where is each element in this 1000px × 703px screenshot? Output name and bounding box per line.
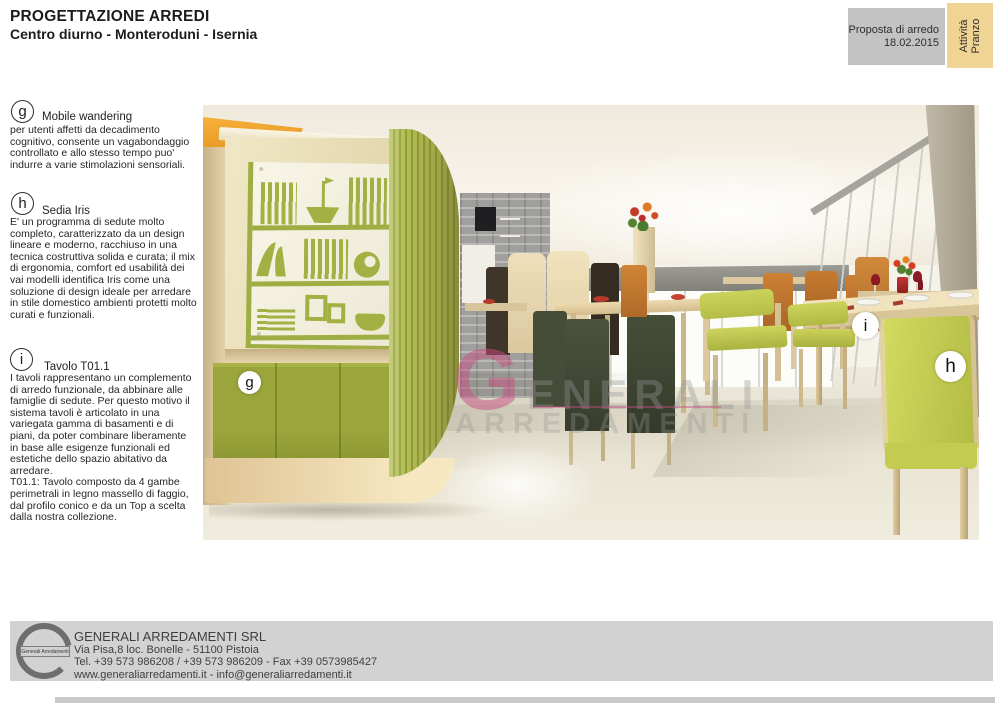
annotation-letter-g: g xyxy=(11,100,34,123)
lime-chair-back xyxy=(699,288,775,319)
red-dish xyxy=(483,299,495,304)
chair-leg xyxy=(799,349,803,407)
cabinet-niche-shelf xyxy=(225,349,401,363)
activity-tab-line2: Pranzo xyxy=(970,19,982,54)
frame-silhouette xyxy=(327,303,345,323)
plate xyxy=(855,298,881,306)
footer-web-email: www.generaliarredamenti.it - info@genera… xyxy=(74,669,377,681)
footer-address: Via Pisa,8 loc. Bonelle - 51100 Pistoia xyxy=(74,644,377,656)
annotation-body-i: I tavoli rappresentano un complemento di… xyxy=(10,373,197,524)
plant-silhouette xyxy=(256,242,276,276)
panel-screw xyxy=(259,167,263,171)
lime-chair-back xyxy=(787,301,848,327)
activity-tab-text: Attività Pranzo xyxy=(947,4,993,68)
annotation-letter-i: i xyxy=(10,348,33,371)
annotation-body-i-part1: I tavoli rappresentano un complemento di… xyxy=(10,373,197,477)
proposal-label: Proposta di arredo xyxy=(849,24,940,37)
wine-glass-stem xyxy=(916,282,918,291)
green-shelf xyxy=(252,225,395,231)
sailboat-silhouette xyxy=(322,181,325,209)
lime-chair-back xyxy=(879,315,979,454)
red-vase xyxy=(897,277,908,293)
footer-company-name: GENERALI ARREDAMENTI SRL xyxy=(74,629,377,644)
sailboat-silhouette xyxy=(302,207,342,224)
render-marker-h: h xyxy=(935,351,966,382)
plate xyxy=(903,294,930,302)
door-seam xyxy=(339,363,341,461)
sailboat-silhouette xyxy=(325,177,334,184)
wine-glass-stem xyxy=(874,285,876,294)
proposal-date: 18.02.2015 xyxy=(884,37,939,50)
tv-screen xyxy=(475,207,496,231)
dining-room-render: GENERALI ARREDAMENTI g i h xyxy=(203,105,979,540)
render-marker-g: g xyxy=(238,371,261,394)
chair-leg xyxy=(843,347,847,409)
watermark-arredamenti: ARREDAMENTI xyxy=(455,408,757,441)
book-silhouettes xyxy=(260,182,297,224)
chair-leg xyxy=(960,467,968,539)
page-title: PROGETTAZIONE ARREDI xyxy=(10,8,209,26)
chair-leg xyxy=(763,353,768,431)
green-shelf xyxy=(252,281,395,287)
red-dish xyxy=(593,296,609,302)
activity-tab: Attività Pranzo xyxy=(947,3,993,68)
annotation-body-h: E' un programma di sedute molto completo… xyxy=(10,217,197,321)
activity-tab-line1: Attività xyxy=(958,20,970,53)
proposal-box: Proposta di arredo 18.02.2015 xyxy=(848,8,945,65)
frame-silhouette xyxy=(305,295,327,321)
plant-silhouette xyxy=(272,246,286,276)
cabinet-frosted-panel xyxy=(246,162,397,350)
apple-silhouette xyxy=(354,251,380,277)
wall-shelf xyxy=(500,235,520,237)
book-silhouettes xyxy=(304,239,349,280)
bottom-edge-strip xyxy=(55,697,995,703)
annotation-body-g: per utenti affetti da decadimento cognit… xyxy=(10,125,197,171)
lime-chair-seat xyxy=(793,329,855,347)
proposal-page: PROGETTAZIONE ARREDI Centro diurno - Mon… xyxy=(0,0,1000,703)
floor-light-glow xyxy=(438,443,598,527)
annotation-title-g: Mobile wandering xyxy=(42,111,132,123)
orange-chair xyxy=(621,265,647,317)
book-stack-silhouette xyxy=(257,308,295,331)
background-table xyxy=(465,303,527,311)
annotation-body-i-part2: T01.1: Tavolo composto da 4 gambe perime… xyxy=(10,477,197,523)
annotation-letter-h: h xyxy=(11,192,34,215)
tulip-flowers xyxy=(888,255,918,279)
lime-chair-seat xyxy=(885,443,977,469)
chair-leg xyxy=(893,469,900,535)
green-shelf xyxy=(251,335,394,341)
plate xyxy=(947,291,974,299)
bowl-silhouette xyxy=(355,313,385,330)
book-silhouettes xyxy=(348,177,387,226)
footer-contact-block: GENERALI ARREDAMENTI SRL Via Pisa,8 loc.… xyxy=(74,629,377,681)
wall-shelf xyxy=(500,218,520,220)
red-dish xyxy=(671,294,685,300)
render-marker-i: i xyxy=(852,312,879,339)
company-logo-label: Generali Arredamenti xyxy=(20,646,70,657)
wine-glass xyxy=(871,274,880,285)
page-subtitle: Centro diurno - Monteroduni - Isernia xyxy=(10,26,257,42)
footer-phone-fax: Tel. +39 573 986208 / +39 573 986209 - F… xyxy=(74,656,377,668)
door-seam xyxy=(275,363,277,461)
flower-bouquet xyxy=(622,199,664,231)
